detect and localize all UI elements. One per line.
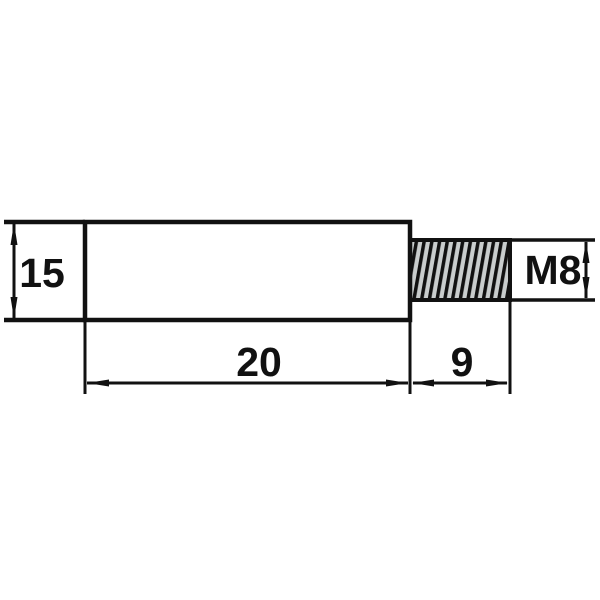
dimension-thread-length-9: 9	[412, 302, 510, 394]
dimension-body-length-20: 20	[85, 322, 410, 394]
dimension-label-thread-size: M8	[525, 247, 582, 293]
part-drawing	[85, 222, 510, 320]
dimension-label-body-length: 20	[236, 339, 282, 385]
arrowhead-right-icon	[386, 380, 408, 387]
dimension-label-height: 15	[19, 250, 65, 296]
arrowhead-up-icon	[583, 241, 590, 263]
arrowhead-down-icon	[583, 277, 590, 299]
thread-hatching	[411, 242, 509, 299]
arrowhead-up-icon	[11, 223, 18, 245]
arrowhead-left-icon	[412, 380, 434, 387]
dimension-height-15: 15	[4, 222, 85, 320]
dimension-label-thread-length: 9	[451, 339, 474, 385]
arrowhead-down-icon	[11, 297, 18, 319]
drawing-canvas: 15 20 9 M8	[0, 0, 600, 600]
arrowhead-right-icon	[486, 380, 508, 387]
technical-drawing-page: 15 20 9 M8	[0, 0, 600, 600]
dimension-thread-size-m8: M8	[512, 240, 595, 300]
part-body	[85, 222, 410, 320]
arrowhead-left-icon	[87, 380, 109, 387]
